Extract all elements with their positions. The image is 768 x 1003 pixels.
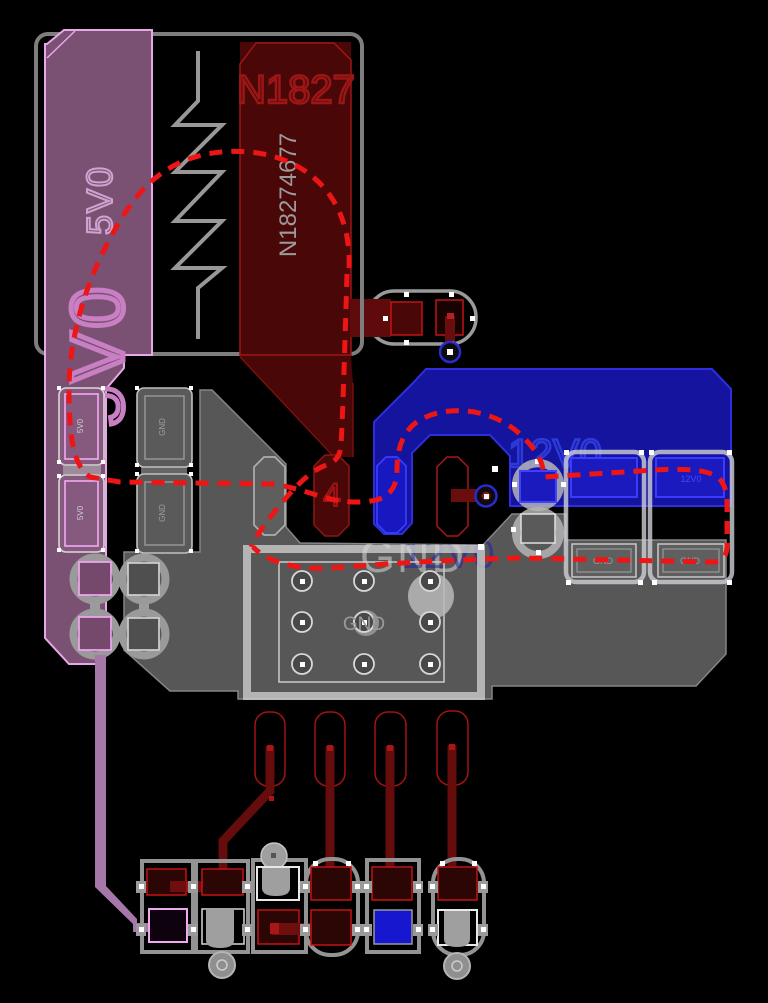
svg-text:5V0: 5V0 <box>76 418 85 433</box>
svg-text:5V0: 5V0 <box>76 505 85 520</box>
svg-text:12V0: 12V0 <box>680 474 701 484</box>
svg-text:GND: GND <box>158 418 167 436</box>
svg-text:N18274677: N18274677 <box>275 133 302 257</box>
svg-text:GND: GND <box>158 504 167 522</box>
svg-text:N1827: N1827 <box>237 68 355 112</box>
svg-text:GND: GND <box>343 614 385 635</box>
svg-text:5V0: 5V0 <box>79 165 120 235</box>
svg-text:4: 4 <box>323 477 341 513</box>
